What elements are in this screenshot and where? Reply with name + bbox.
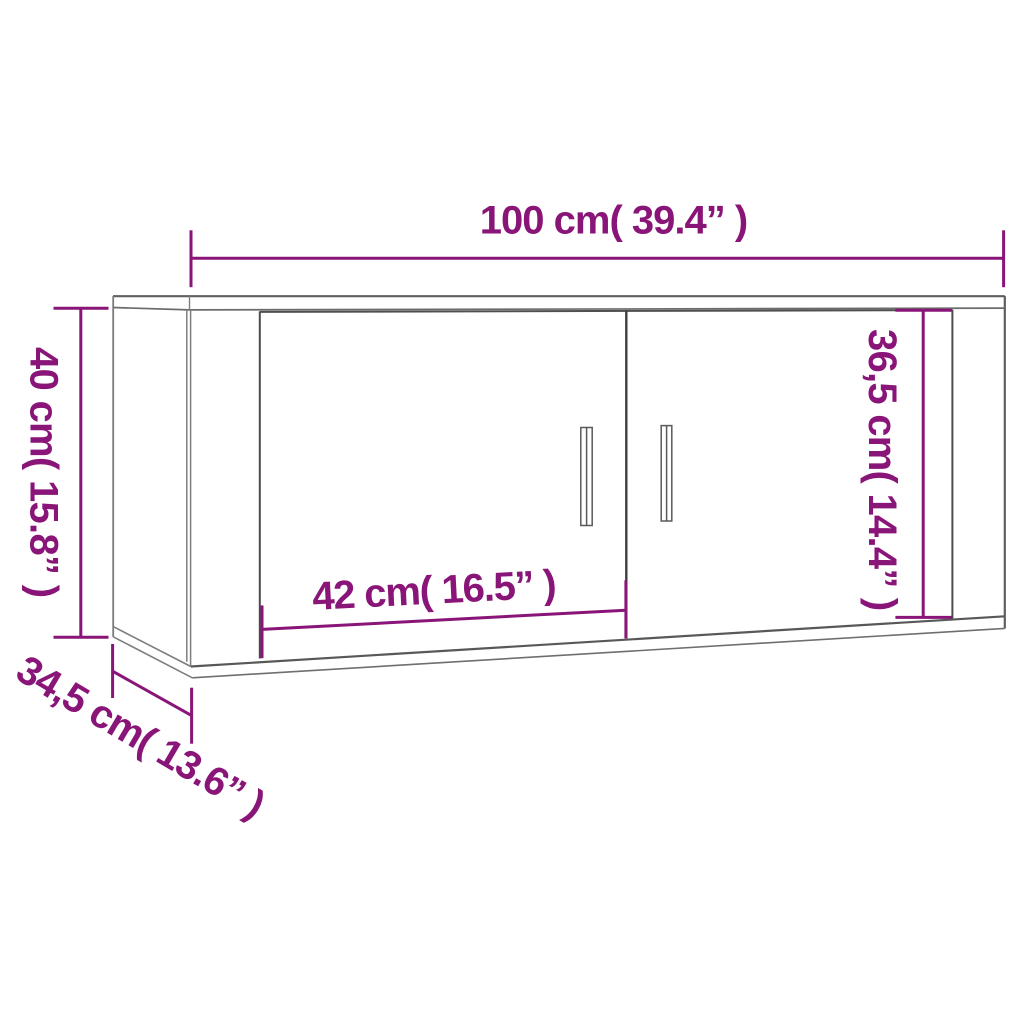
- svg-text:34,5 cm( 13.6” ): 34,5 cm( 13.6” ): [9, 647, 272, 827]
- svg-text:100 cm( 39.4” ): 100 cm( 39.4” ): [480, 199, 747, 243]
- svg-text:40 cm( 15.8” ): 40 cm( 15.8” ): [22, 347, 66, 597]
- svg-text:36,5 cm( 14.4” ): 36,5 cm( 14.4” ): [860, 329, 904, 611]
- svg-text:42 cm( 16.5” ): 42 cm( 16.5” ): [311, 562, 556, 619]
